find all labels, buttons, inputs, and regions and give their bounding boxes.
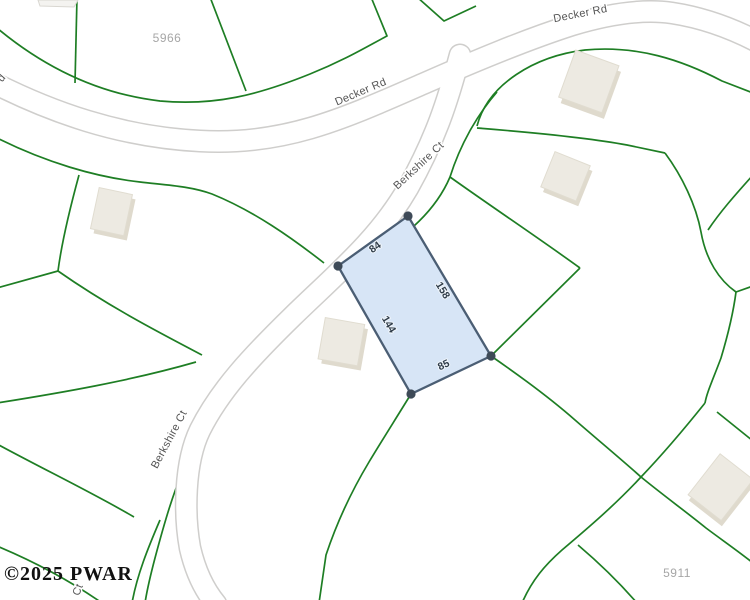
parcel-line bbox=[58, 271, 202, 355]
building-footprint bbox=[686, 454, 750, 526]
parcel-number-5911: 5911 bbox=[663, 566, 691, 580]
parcel-number-5966: 5966 bbox=[153, 31, 182, 45]
parcel-line bbox=[0, 362, 196, 403]
vertex-node bbox=[403, 211, 412, 220]
parcel-line bbox=[491, 356, 641, 477]
parcel-line bbox=[0, 138, 324, 263]
building-footprint bbox=[557, 50, 623, 119]
vertex-node bbox=[333, 261, 342, 270]
parcel-line bbox=[319, 394, 411, 600]
plat-map-svg[interactable]: 84 158 144 85 Decker Rd Decker Rd Berksh… bbox=[0, 0, 750, 600]
map-canvas[interactable]: 84 158 144 85 Decker Rd Decker Rd Berksh… bbox=[0, 0, 750, 600]
building-outline-fragment bbox=[38, 0, 78, 7]
building-footprint bbox=[539, 152, 594, 207]
parcel-line bbox=[75, 0, 77, 83]
watermark: ©2025 PWAR bbox=[4, 563, 133, 585]
parcel-line bbox=[736, 286, 750, 292]
building-footprint bbox=[90, 188, 137, 241]
parcel-line bbox=[705, 292, 736, 403]
parcel-line bbox=[0, 444, 134, 517]
parcel-line bbox=[578, 545, 637, 600]
parcel-line bbox=[477, 128, 665, 153]
parcel-line bbox=[0, 0, 387, 102]
parcel-line bbox=[132, 520, 160, 600]
vertex-node bbox=[406, 389, 415, 398]
parcel-line bbox=[417, 0, 476, 21]
parcel-line bbox=[491, 268, 580, 356]
parcel-line bbox=[58, 175, 79, 271]
building-footprint bbox=[317, 318, 368, 371]
parcel-line bbox=[708, 175, 750, 230]
parcel-line bbox=[210, 0, 246, 91]
parcel-line bbox=[665, 153, 736, 292]
parcel-line bbox=[717, 412, 750, 441]
parcel-line bbox=[0, 271, 58, 288]
vertex-node bbox=[486, 351, 495, 360]
decker-rd-road-surface bbox=[0, 12, 750, 142]
